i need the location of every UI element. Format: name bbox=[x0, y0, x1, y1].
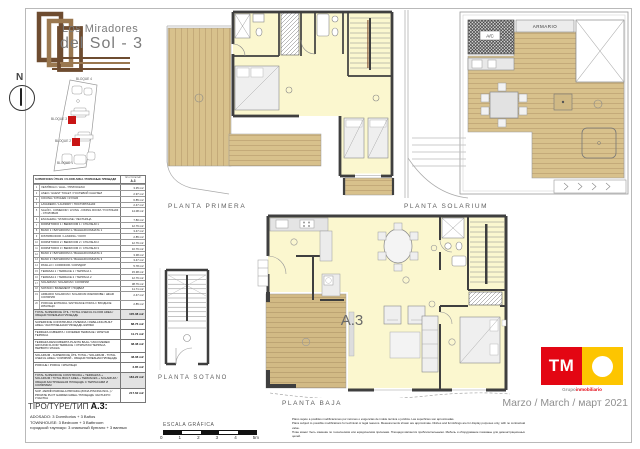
armario-label: ARMARIO bbox=[533, 24, 558, 29]
scale-label: ESCALA GRÁFICA bbox=[163, 422, 214, 428]
table-row: 20 PORCHE ENTRADA / ENTRANCE PORCH / ВХО… bbox=[34, 300, 145, 309]
row-label: SALÓN - COMEDOR / LIVING - DINING ROOM /… bbox=[40, 208, 121, 216]
row-label: SOLARIUM / SOLARIUM / СОЛЯРИЙ bbox=[40, 281, 121, 286]
planta-sotano-label: PLANTA SOTANO bbox=[158, 375, 228, 381]
project-title-line2: del Sol - 3 bbox=[60, 35, 143, 53]
scale-tick: 3 bbox=[216, 435, 219, 440]
tm-logo-monogram: TM bbox=[541, 347, 582, 385]
summary-row: TERRAZA CUBIERTA / COVERED TERRACE / КРЫ… bbox=[34, 329, 145, 339]
row-value: 3.38 m2 bbox=[121, 252, 146, 257]
summary-value: 2.85 m2 bbox=[121, 363, 146, 372]
row-label: BAÑO 1 / BATHROOM 1 / ВАННАЯ КОМНАТА 1 bbox=[40, 229, 121, 234]
summary-row: PORCHE / PORCH / КРЫЛЬЦО 2.85 m2 bbox=[34, 362, 145, 372]
tm-brand-logo: TM bbox=[541, 347, 623, 385]
row-label: PASILLO / CORRIDOR / КОРИДОР bbox=[40, 263, 121, 268]
row-label: ASEO / GUEST TOILET / ГОСТЕВОЙ САНУЗЕЛ bbox=[40, 191, 121, 196]
type-value: A.3: bbox=[91, 401, 108, 411]
areas-table-body: 1 VESTÍBULO / HALL / ПРИХОЖАЯ 3.35 m2 2 … bbox=[34, 184, 145, 308]
row-label: SÓTANO / BASEMENT / ПОДВАЛ bbox=[40, 287, 121, 292]
planta-sotano-drawing bbox=[158, 266, 216, 372]
areas-table-header: SUPERFICIES ÚTILES / FLOOR AREA / ПОЛЕЗН… bbox=[34, 176, 145, 184]
scale-tick: 2 bbox=[197, 435, 200, 440]
project-title-line1: Los Miradores bbox=[62, 23, 138, 35]
ac-label: A/C bbox=[486, 34, 494, 39]
scale-ticks: 012345m bbox=[160, 435, 259, 440]
table-row: 15 TERRAZA 1 / TERRACE 1 / ТЕРРАСА 1 15.… bbox=[34, 268, 145, 274]
row-label: DORMITORIO 2 / BEDROOM 2 / СПАЛЬНЯ 2 bbox=[40, 240, 121, 245]
planta-solarium-drawing: A/C ARMARIO bbox=[402, 8, 632, 206]
block-label: BLOQUE 2 bbox=[55, 139, 71, 143]
scale-tick: 4 bbox=[234, 435, 237, 440]
table-row: 9 DISTRIBUIDOR / LANDING / ХОЛЛ 2.85 m2 bbox=[34, 233, 145, 239]
row-value: 5.78 m2 bbox=[121, 263, 146, 268]
planta-primera-label: PLANTA PRIMERA bbox=[168, 203, 246, 210]
table-row: 10 DORMITORIO 2 / BEDROOM 2 / СПАЛЬНЯ 2 … bbox=[34, 239, 145, 245]
row-value: 38.76 m2 bbox=[121, 281, 146, 286]
row-label: DORMITORIO 3 / BEDROOM 3 / СПАЛЬНЯ 3 bbox=[40, 246, 121, 251]
summary-value: 184.22 m2 bbox=[121, 373, 146, 389]
row-value: 15.38 m2 bbox=[121, 269, 146, 274]
compass-north-label: N bbox=[16, 72, 23, 83]
summary-label: TERRAZA CUBIERTA / COVERED TERRACE / КРЫ… bbox=[34, 330, 121, 339]
planta-primera-drawing bbox=[163, 10, 401, 202]
table-row: 1 VESTÍBULO / HALL / ПРИХОЖАЯ 3.35 m2 bbox=[34, 184, 145, 190]
summary-row: TOTAL SUPERFICIE CONSTRUIDA + TERRAZAS +… bbox=[34, 372, 145, 389]
table-row: 6 ESCALERA / STAIRCASE / ЛЕСТНИЦА 7.80 m… bbox=[34, 216, 145, 222]
row-label: ARMARIO SOLARIUM / SOLARIUM WARDROBE / Ш… bbox=[40, 292, 121, 300]
planta-baja-drawing: A.3 bbox=[256, 212, 512, 398]
summary-label: SUP. JARDÍN PARCELA PRIVADA (ZONA PISCIN… bbox=[34, 389, 121, 401]
planta-solarium-label: PLANTA SOLARIUM bbox=[404, 203, 488, 210]
table-row: 2 ASEO / GUEST TOILET / ГОСТЕВОЙ САНУЗЕЛ… bbox=[34, 190, 145, 196]
table-row: 13 BAÑO 3 / BATHROOM 3 / ВАННАЯ КОМНАТА … bbox=[34, 257, 145, 263]
scale-tick: 1 bbox=[179, 435, 182, 440]
row-value: 2.47 m2 bbox=[121, 292, 146, 300]
row-label: TERRAZA 2 / TERRACE 2 / ТЕРРАСА 2 bbox=[40, 275, 121, 280]
block-label: BLOQUE 4 bbox=[76, 77, 92, 81]
planta-baja-label: PLANTA BAJA bbox=[282, 400, 342, 407]
summary-value: 217.62 m2 bbox=[121, 389, 146, 401]
row-value: 2.85 m2 bbox=[121, 301, 146, 309]
table-row: 8 BAÑO 1 / BATHROOM 1 / ВАННАЯ КОМНАТА 1… bbox=[34, 228, 145, 234]
row-value: 12.76 m2 bbox=[121, 223, 146, 228]
site-key-plan: BLOQUE 4 BLOQUE 3 BLOQUE 2 BLOQUE 1 bbox=[34, 74, 114, 176]
row-label: LAVADERO / LAUNDRY / ПОСТИРОЧНАЯ bbox=[40, 203, 121, 208]
row-value: 10.76 m2 bbox=[121, 246, 146, 251]
disclaimer-line: План может быть изменён по техническим и… bbox=[292, 430, 525, 439]
row-label: DORMITORIO 1 / BEDROOM 1 / СПАЛЬНЯ 1 bbox=[40, 223, 121, 228]
logo-bar bbox=[52, 68, 130, 70]
unit-type-label: A.3 bbox=[341, 312, 364, 329]
summary-value: 88.76 m2 bbox=[121, 320, 146, 329]
summary-row: TERRAZA DESCUBIERTA PLANTA BAJA / UNCOVE… bbox=[34, 339, 145, 352]
highlighted-unit bbox=[72, 138, 80, 146]
table-row: 16 TERRAZA 2 / TERRACE 2 / ТЕРРАСА 2 12.… bbox=[34, 274, 145, 280]
brand-caption-red: inmobiliario bbox=[576, 387, 602, 392]
areas-table: SUPERFICIES ÚTILES / FLOOR AREA / ПОЛЕЗН… bbox=[33, 175, 146, 403]
summary-label: SUPERFICIE CONSTRUIDA VIVIENDA / DWELLIN… bbox=[34, 320, 121, 329]
row-label: BAÑO 3 / BATHROOM 3 / ВАННАЯ КОМНАТА 3 bbox=[40, 258, 121, 263]
sun-circle-icon bbox=[592, 356, 613, 377]
legal-disclaimer: Plano sujeto a posibles modificaciones p… bbox=[292, 417, 525, 438]
summary-label: TERRAZA DESCUBIERTA PLANTA BAJA / UNCOVE… bbox=[34, 340, 121, 352]
disclaimer-line: Plans subject to possible modifications … bbox=[292, 421, 525, 430]
summary-value: 11.71 m2 bbox=[121, 330, 146, 339]
row-value: 12.76 m2 bbox=[121, 240, 146, 245]
scale-tick: 0 bbox=[160, 435, 163, 440]
row-label: ESCALERA / STAIRCASE / ЛЕСТНИЦА bbox=[40, 217, 121, 222]
brand-caption-gray: Grupo bbox=[562, 387, 576, 392]
areas-table-type-header: TIPO/TYPE/ТИП A.3 bbox=[121, 176, 145, 183]
table-row: 5 SALÓN - COMEDOR / LIVING - DINING ROOM… bbox=[34, 207, 145, 216]
row-label: VESTÍBULO / HALL / ПРИХОЖАЯ bbox=[40, 185, 121, 190]
row-label: PORCHE ENTRADA / ENTRANCE PORCH / ВХОДНО… bbox=[40, 301, 121, 309]
table-row: 7 DORMITORIO 1 / BEDROOM 1 / СПАЛЬНЯ 1 1… bbox=[34, 222, 145, 228]
logo-bar bbox=[60, 57, 130, 59]
type-header-model: A.3 bbox=[121, 180, 145, 183]
table-row: 17 SOLARIUM / SOLARIUM / СОЛЯРИЙ 38.76 m… bbox=[34, 280, 145, 286]
unit-description: ADOSADO: 3 Dormitorios + 3 BañosTOWNHOUS… bbox=[30, 414, 127, 431]
summary-row: SUP. JARDÍN PARCELA PRIVADA (ZONA PISCIN… bbox=[34, 388, 145, 401]
table-row: 4 LAVADERO / LAUNDRY / ПОСТИРОЧНАЯ 2.47 … bbox=[34, 202, 145, 208]
areas-table-summary: TOTAL SUPERFICIE ÚTIL / TOTAL USEFUL FLO… bbox=[34, 309, 145, 402]
table-row: 19 ARMARIO SOLARIUM / SOLARIUM WARDROBE … bbox=[34, 291, 145, 300]
row-label: TERRAZA 1 / TERRACE 1 / ТЕРРАСА 1 bbox=[40, 269, 121, 274]
areas-table-title: SUPERFICIES ÚTILES / FLOOR AREA / ПОЛЕЗН… bbox=[34, 176, 121, 183]
row-value: 3.35 m2 bbox=[121, 185, 146, 190]
scale-tick: 5m bbox=[253, 435, 259, 440]
tm-brand-caption: Grupoinmobiliario bbox=[541, 387, 623, 392]
row-value: 7.80 m2 bbox=[121, 217, 146, 222]
type-prefix: TIPO/TYPE/ТИП bbox=[28, 402, 88, 411]
summary-value: 48.08 m2 bbox=[121, 353, 146, 362]
table-row: 14 PASILLO / CORRIDOR / КОРИДОР 5.78 m2 bbox=[34, 262, 145, 268]
table-row: 11 DORMITORIO 3 / BEDROOM 3 / СПАЛЬНЯ 3 … bbox=[34, 245, 145, 251]
summary-label: TOTAL SUPERFICIE CONSTRUIDA + TERRAZAS +… bbox=[34, 373, 121, 389]
summary-value: 38.38 m2 bbox=[121, 340, 146, 352]
row-value: 2.85 m2 bbox=[121, 234, 146, 239]
summary-value: 105.08 m2 bbox=[121, 310, 146, 319]
type-heading: TIPO/TYPE/ТИП A.3: bbox=[28, 401, 108, 411]
row-label: COCINA / KITCHEN / КУХНЯ bbox=[40, 197, 121, 202]
summary-label: TOTAL SUPERFICIE ÚTIL / TOTAL USEFUL FLO… bbox=[34, 310, 121, 319]
summary-row: TOTAL SUPERFICIE ÚTIL / TOTAL USEFUL FLO… bbox=[34, 309, 145, 319]
row-label: BAÑO 2 / BATHROOM 2 / ВАННАЯ КОМНАТА 2 bbox=[40, 252, 121, 257]
row-value: 3.47 m2 bbox=[121, 258, 146, 263]
highlighted-unit bbox=[68, 116, 76, 124]
row-value: 6.85 m2 bbox=[121, 197, 146, 202]
summary-row: SUPERFICIE CONSTRUIDA VIVIENDA / DWELLIN… bbox=[34, 319, 145, 329]
summary-row: SOLARIUM - SUPERFICIE ÚTIL TOTAL / SOLAR… bbox=[34, 352, 145, 362]
block-label: BLOQUE 3 bbox=[51, 117, 67, 121]
description-line: городской таунхаус: 3 спальный бунгало +… bbox=[30, 425, 127, 431]
table-row: 3 COCINA / KITCHEN / КУХНЯ 6.85 m2 bbox=[34, 196, 145, 202]
row-value: 12.76 m2 bbox=[121, 275, 146, 280]
plan-sheet: Los Miradores del Sol - 3 N BLOQUE 4 BLO… bbox=[0, 0, 640, 449]
table-row: 18 SÓTANO / BASEMENT / ПОДВАЛ 11.71 m2 bbox=[34, 286, 145, 292]
row-value: 3.47 m2 bbox=[121, 229, 146, 234]
row-value: 2.47 m2 bbox=[121, 203, 146, 208]
row-value: 11.71 m2 bbox=[121, 287, 146, 292]
row-label: DISTRIBUIDOR / LANDING / ХОЛЛ bbox=[40, 234, 121, 239]
row-value: 14.08 m2 bbox=[121, 208, 146, 216]
summary-label: SOLARIUM - SUPERFICIE ÚTIL TOTAL / SOLAR… bbox=[34, 353, 121, 362]
table-row: 12 BAÑO 2 / BATHROOM 2 / ВАННАЯ КОМНАТА … bbox=[34, 251, 145, 257]
summary-label: PORCHE / PORCH / КРЫЛЬЦО bbox=[34, 363, 121, 372]
row-value: 2.97 m2 bbox=[121, 191, 146, 196]
issue-date: Marzo / March / март 2021 bbox=[498, 397, 628, 409]
tm-logo-sun-icon bbox=[582, 347, 623, 385]
logo-bar bbox=[60, 62, 130, 64]
block-label: BLOQUE 1 bbox=[57, 161, 73, 165]
